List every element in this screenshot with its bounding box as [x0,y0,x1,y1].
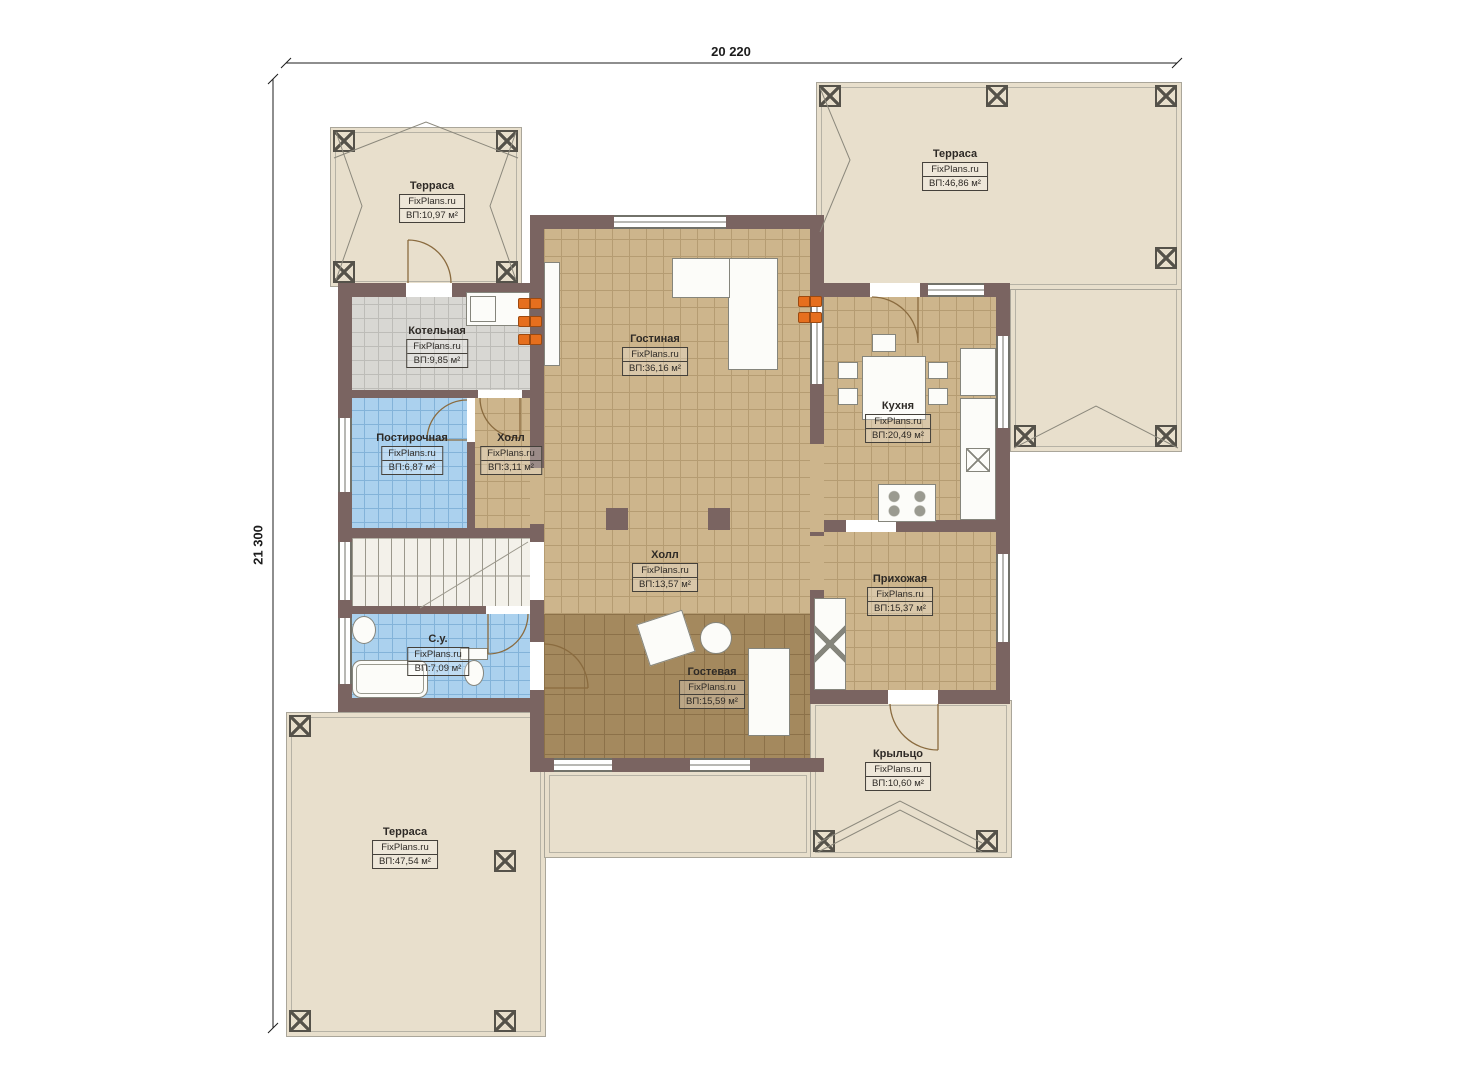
bath-sink [352,616,376,644]
room-area: ВП:15,59 м² [680,695,744,708]
door-gap [530,642,544,690]
radiator-icon [518,316,542,327]
terrace-bottom-strip [544,770,812,858]
room-info-box: FixPlans.ru ВП:46,86 м² [922,162,988,191]
radiator-icon [798,296,822,307]
room-name: Крыльцо [865,748,931,760]
room-name: Постирочная [376,432,447,444]
radiator-icon [798,312,822,323]
room-label-terrace-bottom: Терраса FixPlans.ru ВП:47,54 м² [372,826,438,869]
room-label-hall: Холл FixPlans.ru ВП:13,57 м² [632,549,698,592]
room-name: С.у. [407,633,469,645]
watermark-text: FixPlans.ru [868,588,932,602]
wall-pier [708,508,730,530]
room-name: Кухня [865,400,931,412]
door-gap [888,690,938,704]
room-area: ВП:7,09 м² [408,662,468,675]
door-gap [870,283,920,297]
room-info-box: FixPlans.ru ВП:9,85 м² [406,339,468,368]
stair-steps [352,538,530,608]
wall [338,698,544,712]
watermark-text: FixPlans.ru [633,564,697,578]
fridge [960,348,996,396]
watermark-text: FixPlans.ru [866,763,930,777]
chair [928,388,948,405]
watermark-text: FixPlans.ru [481,447,541,461]
wall-pier [606,508,628,530]
window [338,618,352,684]
room-label-bathroom: С.у. FixPlans.ru ВП:7,09 м² [407,633,469,676]
room-info-box: FixPlans.ru ВП:13,57 м² [632,563,698,592]
room-name: Прихожая [867,573,933,585]
room-name: Гостиная [622,333,688,345]
terrace-top-right-deck-row [816,82,1182,290]
room-label-boiler: Котельная FixPlans.ru ВП:9,85 м² [406,325,468,368]
coffee-table [700,622,732,654]
wall [338,528,530,538]
pillar [813,830,835,852]
room-area: ВП:46,86 м² [923,177,987,190]
terrace-bottom-deck [286,712,546,1037]
radiator-icon [518,298,542,309]
pillar [1014,425,1036,447]
room-area: ВП:15,37 м² [868,602,932,615]
room-label-entry: Прихожая FixPlans.ru ВП:15,37 м² [867,573,933,616]
door-gap [478,390,522,398]
radiator-icon [518,334,542,345]
chair [928,362,948,379]
watermark-text: FixPlans.ru [408,648,468,662]
room-name: Терраса [399,180,465,192]
room-label-terrace-top-right: Терраса FixPlans.ru ВП:46,86 м² [922,148,988,191]
opening [810,536,824,590]
chair [872,334,896,352]
boiler-unit [470,296,496,322]
room-info-box: FixPlans.ru ВП:6,87 м² [381,446,443,475]
window [690,758,750,772]
opening [530,542,544,600]
room-area: ВП:20,49 м² [866,429,930,442]
sofa-corner [672,258,730,298]
room-name: Холл [480,432,542,444]
watermark-text: FixPlans.ru [382,447,442,461]
dimension-left: 21 300 [251,525,266,565]
pillar [819,85,841,107]
opening [810,444,824,532]
door-gap [467,398,475,442]
room-name: Гостевая [679,666,745,678]
room-area: ВП:10,97 м² [400,209,464,222]
room-label-guest: Гостевая FixPlans.ru ВП:15,59 м² [679,666,745,709]
room-label-porch: Крыльцо FixPlans.ru ВП:10,60 м² [865,748,931,791]
pillar [1155,247,1177,269]
room-label-living: Гостиная FixPlans.ru ВП:36,16 м² [622,333,688,376]
pillar [1155,85,1177,107]
pillar [333,130,355,152]
pillar [986,85,1008,107]
watermark-text: FixPlans.ru [680,681,744,695]
room-name: Терраса [372,826,438,838]
chair [838,362,858,379]
room-info-box: FixPlans.ru ВП:10,60 м² [865,762,931,791]
pillar [1155,425,1177,447]
watermark-text: FixPlans.ru [400,195,464,209]
room-area: ВП:3,11 м² [481,461,541,474]
room-info-box: FixPlans.ru ВП:20,49 м² [865,414,931,443]
room-area: ВП:47,54 м² [373,855,437,868]
pillar [976,830,998,852]
room-label-kitchen: Кухня FixPlans.ru ВП:20,49 м² [865,400,931,443]
room-info-box: FixPlans.ru ВП:15,59 м² [679,680,745,709]
stove [878,484,936,522]
window [996,554,1010,642]
watermark-text: FixPlans.ru [866,415,930,429]
window [338,418,352,492]
guest-sofa [748,648,790,736]
room-label-hall-small: Холл FixPlans.ru ВП:3,11 м² [480,432,542,475]
door-gap [406,283,452,297]
pillar [494,850,516,872]
watermark-text: FixPlans.ru [373,841,437,855]
room-area: ВП:36,16 м² [623,362,687,375]
room-info-box: FixPlans.ru ВП:47,54 м² [372,840,438,869]
kitchen-sink [966,448,990,472]
room-info-box: FixPlans.ru ВП:36,16 м² [622,347,688,376]
sofa [728,258,778,370]
window [338,542,352,600]
room-info-box: FixPlans.ru ВП:7,09 м² [407,647,469,676]
opening [530,468,544,524]
wardrobe [814,598,846,690]
pillar [289,1010,311,1032]
room-area: ВП:6,87 м² [382,461,442,474]
room-name: Котельная [406,325,468,337]
pillar [333,261,355,283]
room-info-box: FixPlans.ru ВП:3,11 м² [480,446,542,475]
room-name: Терраса [922,148,988,160]
room-name: Холл [632,549,698,561]
pillar [496,130,518,152]
pillar [289,715,311,737]
window [928,283,984,297]
room-area: ВП:9,85 м² [407,354,467,367]
watermark-text: FixPlans.ru [407,340,467,354]
room-area: ВП:10,60 м² [866,777,930,790]
fireplace [544,262,560,366]
dimension-top: 20 220 [711,44,751,59]
pillar [494,1010,516,1032]
room-label-terrace-top-left: Терраса FixPlans.ru ВП:10,97 м² [399,180,465,223]
window [996,336,1010,428]
floor-plan: 20 220 21 300 Терраса FixPlans.ru ВП:10,… [0,0,1474,1080]
window [554,758,612,772]
room-info-box: FixPlans.ru ВП:15,37 м² [867,587,933,616]
room-info-box: FixPlans.ru ВП:10,97 м² [399,194,465,223]
pillar [496,261,518,283]
watermark-text: FixPlans.ru [623,348,687,362]
room-label-laundry: Постирочная FixPlans.ru ВП:6,87 м² [376,432,447,475]
window [614,215,726,229]
watermark-text: FixPlans.ru [923,163,987,177]
room-area: ВП:13,57 м² [633,578,697,591]
door-gap [486,606,530,614]
chair [838,388,858,405]
